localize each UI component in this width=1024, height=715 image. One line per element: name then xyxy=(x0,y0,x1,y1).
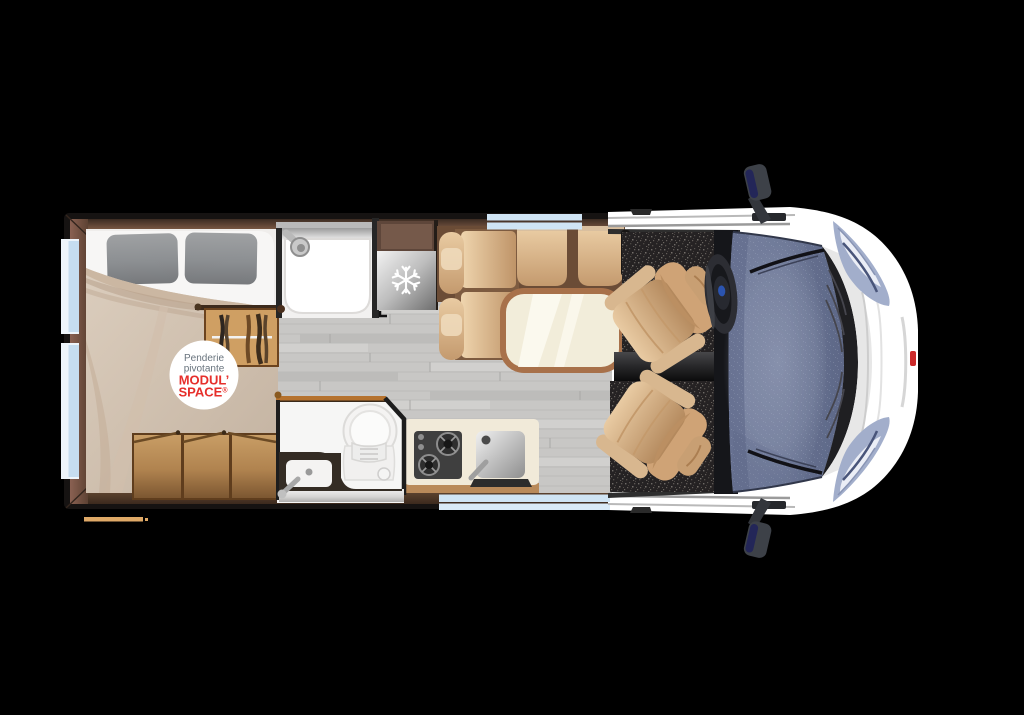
svg-text:Penderie: Penderie xyxy=(184,353,224,364)
svg-text:SPACE®: SPACE® xyxy=(179,385,229,400)
